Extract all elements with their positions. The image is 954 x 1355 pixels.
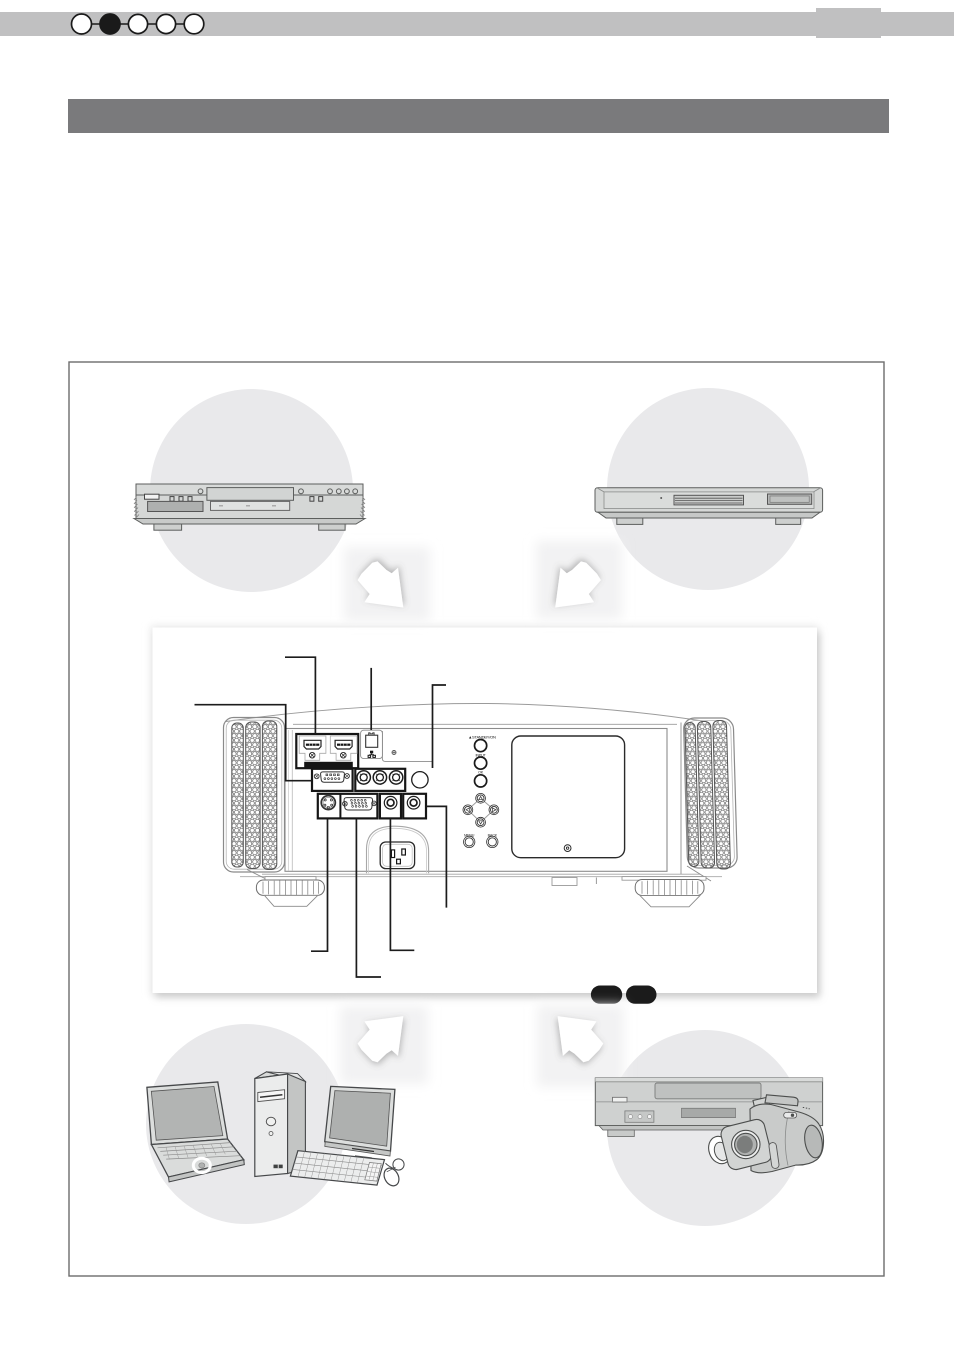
svg-text:▲STANDBY/ON: ▲STANDBY/ON	[468, 735, 496, 740]
